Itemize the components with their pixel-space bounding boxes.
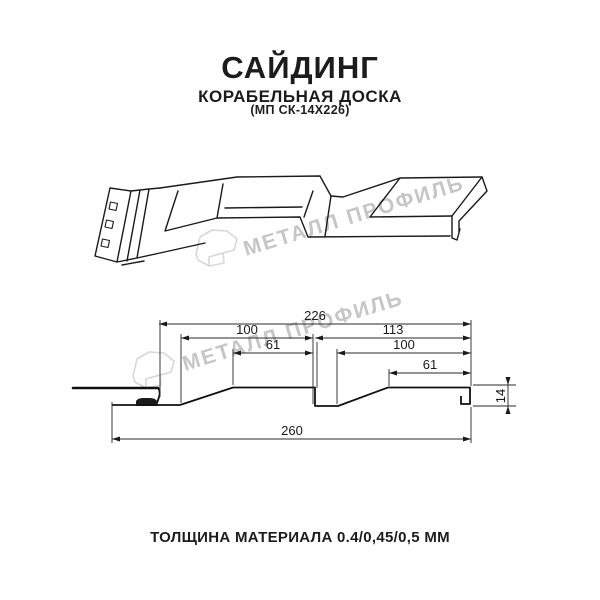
watermark-brand-text: МЕТАЛЛ ПРОФИЛЬ xyxy=(180,287,406,376)
dim-260: 260 xyxy=(281,423,303,438)
dim-113: 113 xyxy=(383,322,404,337)
watermark-upper: МЕТАЛЛ ПРОФИЛЬ xyxy=(196,172,467,266)
dimension-arrows xyxy=(112,322,511,442)
dim-61-left: 61 xyxy=(266,337,280,352)
metall-profil-logo-icon xyxy=(196,230,237,266)
dim-61-right: 61 xyxy=(423,357,437,372)
profile-outline xyxy=(73,388,470,407)
dim-100-left: 100 xyxy=(236,322,258,337)
dim-226: 226 xyxy=(304,308,326,323)
product-drawing-page: САЙДИНГ КОРАБЕЛЬНАЯ ДОСКА (МП СК-14Х226)… xyxy=(0,0,600,600)
thickness-note: ТОЛЩИНА МАТЕРИАЛА 0.4/0,45/0,5 ММ xyxy=(0,529,600,546)
metall-profil-logo-icon xyxy=(133,352,174,388)
nail-flange xyxy=(95,188,131,262)
dimension-lines xyxy=(112,324,508,439)
drawing-area: МЕТАЛЛ ПРОФИЛЬ МЕТАЛЛ ПРОФИЛЬ xyxy=(0,0,600,600)
lock-folds xyxy=(117,188,205,265)
dim-14: 14 xyxy=(493,389,508,403)
dim-100-right: 100 xyxy=(393,337,415,352)
